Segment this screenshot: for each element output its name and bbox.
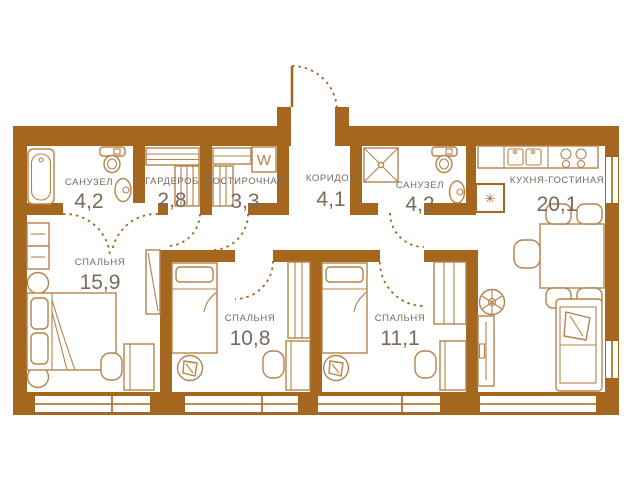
desk-chair-icon: [101, 353, 122, 380]
sink-icon: [450, 181, 465, 203]
window-living: [480, 396, 596, 412]
window-right-lower: [606, 341, 618, 378]
room-label-area: 2,8: [157, 189, 186, 212]
room-label-name: ГАРДЕРОБ: [145, 176, 199, 187]
wall-top-left: [13, 126, 277, 146]
bedroom2-door-arc: [235, 261, 273, 299]
single-bed-icon: [322, 263, 367, 353]
toilet-icon: [100, 147, 125, 173]
room-label-name: СПАЛЬНЯ: [375, 313, 426, 324]
plant-icon: [480, 290, 505, 315]
washing-machine-label: W: [257, 152, 272, 169]
room-label-area: 20,1: [537, 193, 578, 216]
room-bedroom-3: [322, 262, 466, 390]
entry-stub-left: [277, 107, 291, 146]
floor-plan: W ✳: [0, 0, 632, 489]
plant-icon: [178, 356, 203, 381]
room-label-area: 11,1: [380, 327, 419, 350]
window-bedroom3: [318, 396, 440, 412]
room-label-area: 4,2: [74, 190, 103, 213]
wall-divider-bed1-bed2: [160, 250, 172, 392]
bathroom2-door-arc: [390, 213, 424, 247]
bedroom1-door-arc: [112, 214, 158, 252]
desk-icon: [440, 341, 466, 390]
bedroom3-door-arc: [380, 262, 424, 306]
room-label-name: СПАЛЬНЯ: [225, 313, 276, 324]
window-bedroom1: [35, 396, 150, 412]
closet-icon: [27, 223, 49, 269]
bathroom1-door-arc: [63, 214, 110, 257]
room-label-area: 3,3: [230, 190, 259, 213]
shower-icon: [364, 148, 398, 182]
wall-left: [13, 126, 27, 415]
desk-chair-icon: [263, 351, 284, 378]
wall-bath2-bottom-left: [352, 203, 378, 215]
room-label-area: 15,9: [80, 271, 121, 294]
plant-icon: [324, 356, 349, 381]
shaft-symbol: ✳: [485, 191, 496, 206]
room-bedroom-1: [27, 223, 160, 390]
window-bedroom2: [185, 396, 298, 412]
wardrobe-door-arc: [168, 214, 200, 246]
desk-icon: [124, 344, 154, 390]
wall-top-right: [349, 126, 619, 146]
room-label-area: 4,2: [405, 193, 434, 216]
wall-bath1-right: [133, 146, 145, 203]
closet-icon: [288, 262, 310, 338]
room-label-area: 4,1: [316, 188, 345, 211]
tv-console-icon: [478, 316, 494, 386]
wall-divider-bed2-bed3: [310, 250, 322, 392]
wall-bath2-right: [466, 146, 476, 212]
window-right-upper: [606, 157, 618, 203]
laundry-door-arc: [212, 214, 248, 250]
chair-icon: [577, 204, 602, 224]
nightstand-icon: [28, 273, 49, 294]
sofa-icon: [556, 299, 602, 391]
closet-icon: [434, 262, 466, 324]
entry-door-arc: [292, 66, 337, 111]
room-label-name: САНУЗЕЛ: [65, 177, 113, 188]
entry-stub-right: [335, 107, 349, 146]
wall-bed2-bed3-top: [273, 250, 380, 262]
closet-icon: [146, 250, 160, 314]
washing-machine-icon: W: [252, 147, 276, 172]
room-label-name: КОРИДОР: [306, 173, 356, 184]
sink-icon: [115, 179, 131, 202]
desk-icon: [286, 341, 310, 390]
wall-divider-bed3-living: [466, 250, 478, 392]
armchair-icon: [514, 240, 540, 268]
wall-hall-seg1: [27, 203, 63, 215]
wall-bed2-top-left: [172, 250, 235, 262]
utility-shaft: ✳: [476, 184, 504, 212]
room-label-name: КУХНЯ-ГОСТИНАЯ: [510, 175, 605, 186]
room-label-area: 10,8: [230, 327, 271, 350]
room-bedroom-2: [172, 262, 310, 390]
bathtub-icon: [28, 149, 54, 204]
dining-table-icon: [540, 224, 604, 288]
desk-chair-icon: [415, 351, 436, 378]
room-label-name: СПАЛЬНЯ: [75, 257, 126, 268]
room-label-name: САНУЗЕЛ: [396, 180, 444, 191]
room-label-name: ПОСТИРОЧНАЯ: [205, 176, 285, 187]
single-bed-icon: [172, 263, 217, 353]
toilet-icon: [432, 147, 457, 173]
